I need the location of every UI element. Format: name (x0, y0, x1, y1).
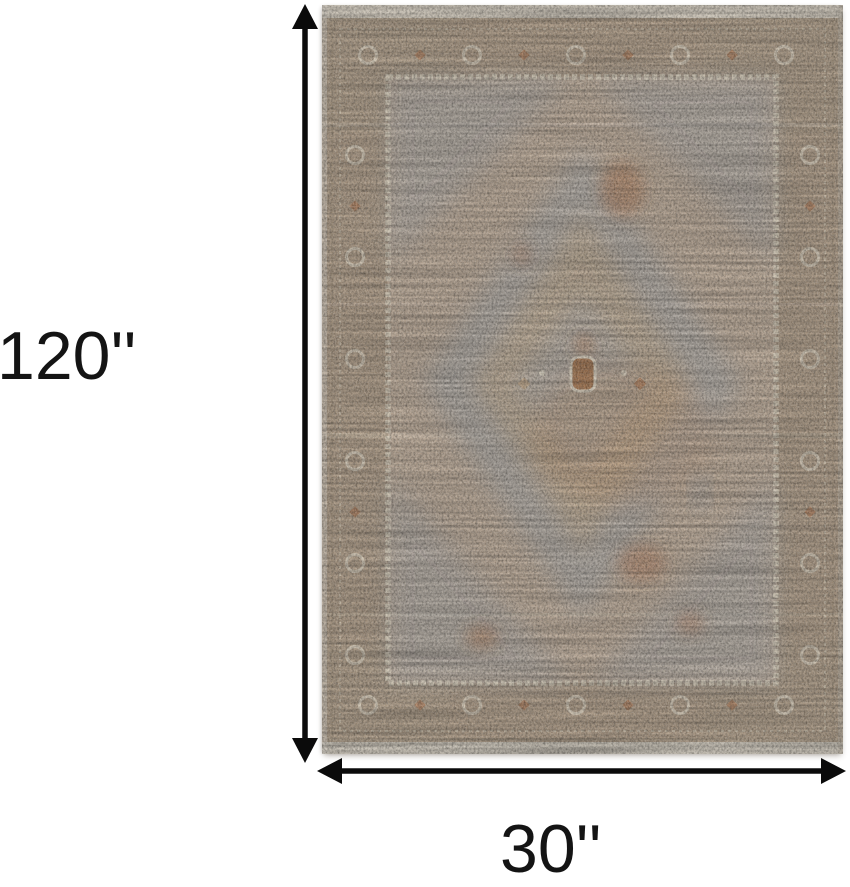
arrowhead-right-icon (821, 758, 846, 784)
arrowhead-up-icon (292, 4, 318, 29)
width-dimension-label: 30'' (500, 815, 602, 883)
rug-art (322, 5, 843, 754)
width-dimension-arrow (317, 758, 846, 784)
arrowhead-down-icon (292, 738, 318, 763)
rug-image (322, 5, 843, 754)
height-dimension-label: 120'' (0, 322, 136, 390)
arrowhead-left-icon (317, 758, 342, 784)
height-dimension-arrow (292, 4, 318, 763)
product-dimension-figure: 120'' 30'' (0, 0, 850, 881)
